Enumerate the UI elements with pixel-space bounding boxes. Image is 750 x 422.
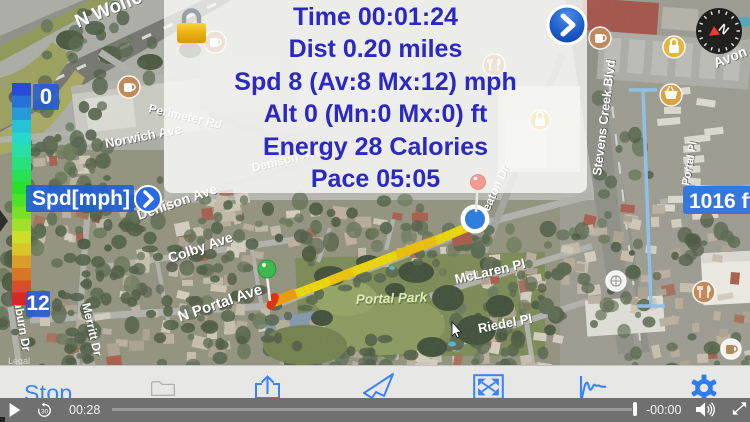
svg-text:Portal Park: Portal Park	[356, 289, 429, 307]
svg-text:30: 30	[41, 408, 48, 415]
svg-text:1016 ft: 1016 ft	[689, 190, 750, 213]
